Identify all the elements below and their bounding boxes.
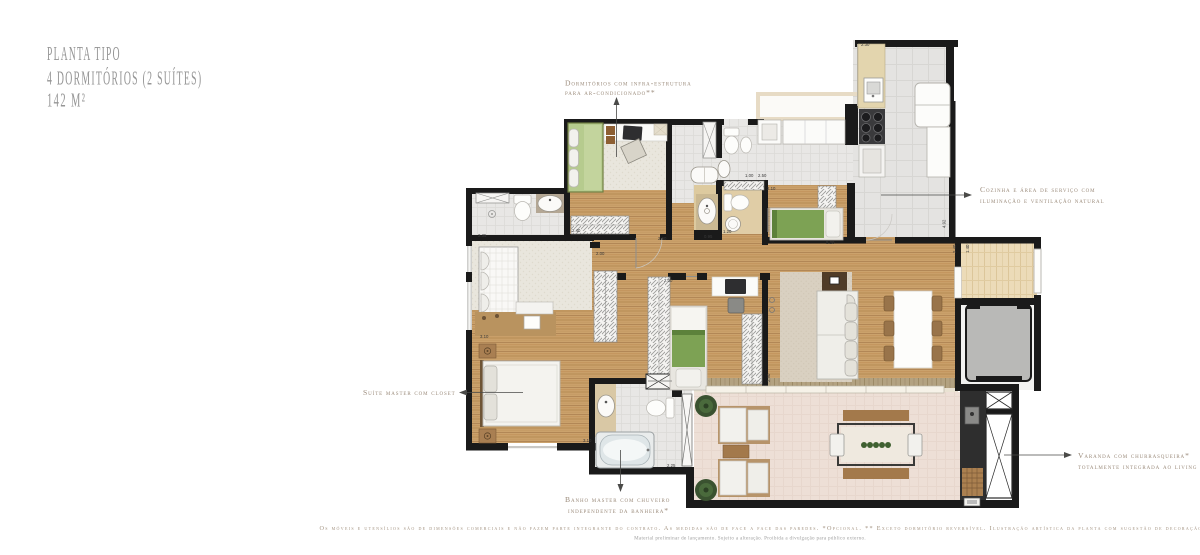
svg-text:2.60: 2.60 — [658, 236, 667, 241]
svg-text:independente da banheira*: independente da banheira* — [568, 506, 669, 515]
svg-text:1.00: 1.00 — [745, 173, 754, 178]
svg-text:1.20: 1.20 — [723, 229, 732, 234]
svg-text:3.10: 3.10 — [480, 334, 489, 339]
svg-text:iluminação e ventilação natura: iluminação e ventilação natural — [980, 196, 1104, 205]
svg-text:2.10: 2.10 — [767, 186, 776, 191]
svg-text:2.50: 2.50 — [758, 173, 767, 178]
svg-text:Banho master com chuveiro: Banho master com chuveiro — [565, 495, 670, 504]
svg-text:Cozinha e área de serviço com: Cozinha e área de serviço com — [980, 185, 1096, 194]
svg-text:para ar-condicionado**: para ar-condicionado** — [565, 88, 656, 97]
svg-text:Suíte master com closet: Suíte master com closet — [363, 388, 456, 397]
svg-text:4.92: 4.92 — [942, 219, 947, 228]
svg-text:5.20: 5.20 — [826, 240, 835, 245]
svg-text:4 DORMITÓRIOS (2 SUÍTES): 4 DORMITÓRIOS (2 SUÍTES) — [47, 68, 202, 90]
svg-text:2.35: 2.35 — [478, 233, 487, 238]
svg-text:2.40: 2.40 — [952, 244, 957, 253]
svg-text:2.25: 2.25 — [667, 463, 676, 468]
svg-text:2.00: 2.00 — [664, 278, 673, 283]
svg-text:2.30: 2.30 — [861, 42, 870, 47]
svg-text:2.40: 2.40 — [572, 228, 581, 233]
svg-text:Material preliminar de lançame: Material preliminar de lançamento. Sujei… — [634, 536, 866, 542]
svg-text:2.90: 2.90 — [766, 373, 771, 382]
svg-text:Varanda com churrasqueira*: Varanda com churrasqueira* — [1078, 451, 1190, 460]
svg-text:0.95: 0.95 — [704, 234, 713, 239]
svg-text:PLANTA TIPO: PLANTA TIPO — [47, 43, 121, 65]
svg-text:Os móveis e utensílios são de: Os móveis e utensílios são de dimensões … — [319, 525, 1200, 532]
svg-text:2.00: 2.00 — [596, 251, 605, 256]
svg-text:Dormitórios com infra-estrutur: Dormitórios com infra-estrutura — [565, 79, 692, 88]
svg-text:1.40: 1.40 — [965, 244, 970, 253]
svg-text:totalmente integrada ao living: totalmente integrada ao living — [1078, 462, 1197, 471]
svg-text:142 M²: 142 M² — [47, 90, 86, 111]
svg-text:3.10: 3.10 — [583, 438, 592, 443]
